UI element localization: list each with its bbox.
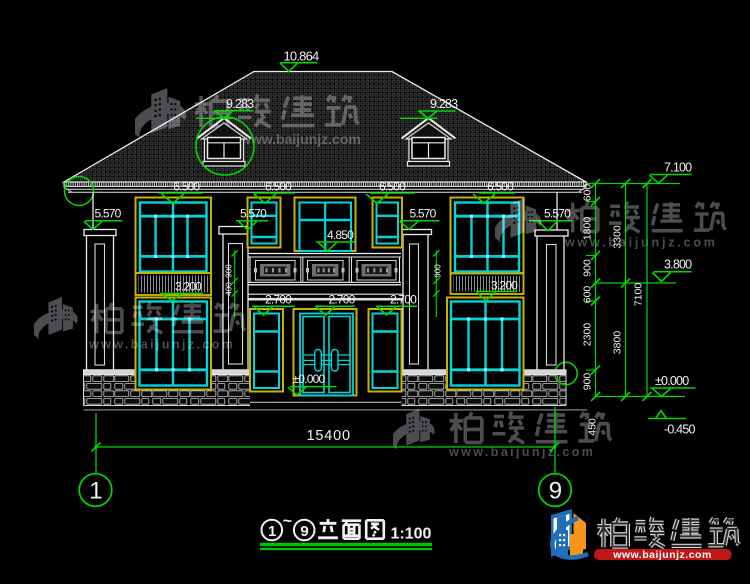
svg-text:450: 450 [587, 418, 599, 436]
svg-text:4.850: 4.850 [327, 228, 354, 242]
svg-text:900: 900 [582, 373, 594, 391]
svg-text:600: 600 [582, 184, 594, 202]
svg-text:5.570: 5.570 [410, 207, 437, 221]
svg-text:900: 900 [434, 264, 443, 278]
svg-text:900: 900 [225, 264, 234, 278]
svg-text:6.500: 6.500 [487, 180, 514, 194]
svg-text:6.500: 6.500 [265, 180, 292, 194]
svg-text:15400: 15400 [307, 428, 351, 444]
svg-text:9.283: 9.283 [226, 97, 254, 111]
svg-text:400: 400 [225, 282, 234, 296]
svg-text:5.570: 5.570 [95, 207, 122, 221]
svg-text:1: 1 [89, 478, 102, 505]
svg-text:3.800: 3.800 [664, 258, 692, 272]
svg-text:1: 1 [268, 523, 276, 540]
svg-text:3800: 3800 [612, 331, 624, 355]
svg-text:7100: 7100 [633, 283, 645, 307]
svg-text:~: ~ [283, 513, 292, 530]
svg-text:±0.000: ±0.000 [655, 374, 689, 388]
svg-text:9.283: 9.283 [430, 97, 458, 111]
svg-text:2300: 2300 [582, 323, 594, 347]
svg-text:2.700: 2.700 [329, 292, 356, 306]
svg-text:1800: 1800 [582, 217, 594, 241]
svg-text:2.700: 2.700 [265, 292, 292, 306]
svg-text:1:100: 1:100 [391, 526, 432, 543]
svg-text:9: 9 [549, 478, 562, 505]
svg-text:www.baijunjz.com: www.baijunjz.com [88, 338, 235, 352]
svg-text:3300: 3300 [612, 225, 624, 249]
svg-text:3.200: 3.200 [491, 278, 518, 292]
svg-text:600: 600 [582, 286, 594, 304]
svg-text:7.100: 7.100 [664, 161, 692, 175]
svg-text:10.864: 10.864 [284, 49, 320, 64]
svg-text:www.baijunjz.com: www.baijunjz.com [239, 131, 361, 147]
svg-text:3.200: 3.200 [175, 279, 202, 293]
svg-text:±0.000: ±0.000 [293, 372, 326, 386]
svg-text:2.700: 2.700 [390, 292, 417, 306]
svg-text:-0.450: -0.450 [664, 423, 695, 437]
svg-text:6.500: 6.500 [173, 180, 200, 194]
svg-text:www.baijunjz.com: www.baijunjz.com [612, 549, 712, 561]
svg-text:5.570: 5.570 [240, 207, 267, 221]
svg-text:900: 900 [582, 259, 594, 277]
svg-text:6.500: 6.500 [379, 180, 406, 194]
svg-text:9: 9 [300, 523, 308, 540]
